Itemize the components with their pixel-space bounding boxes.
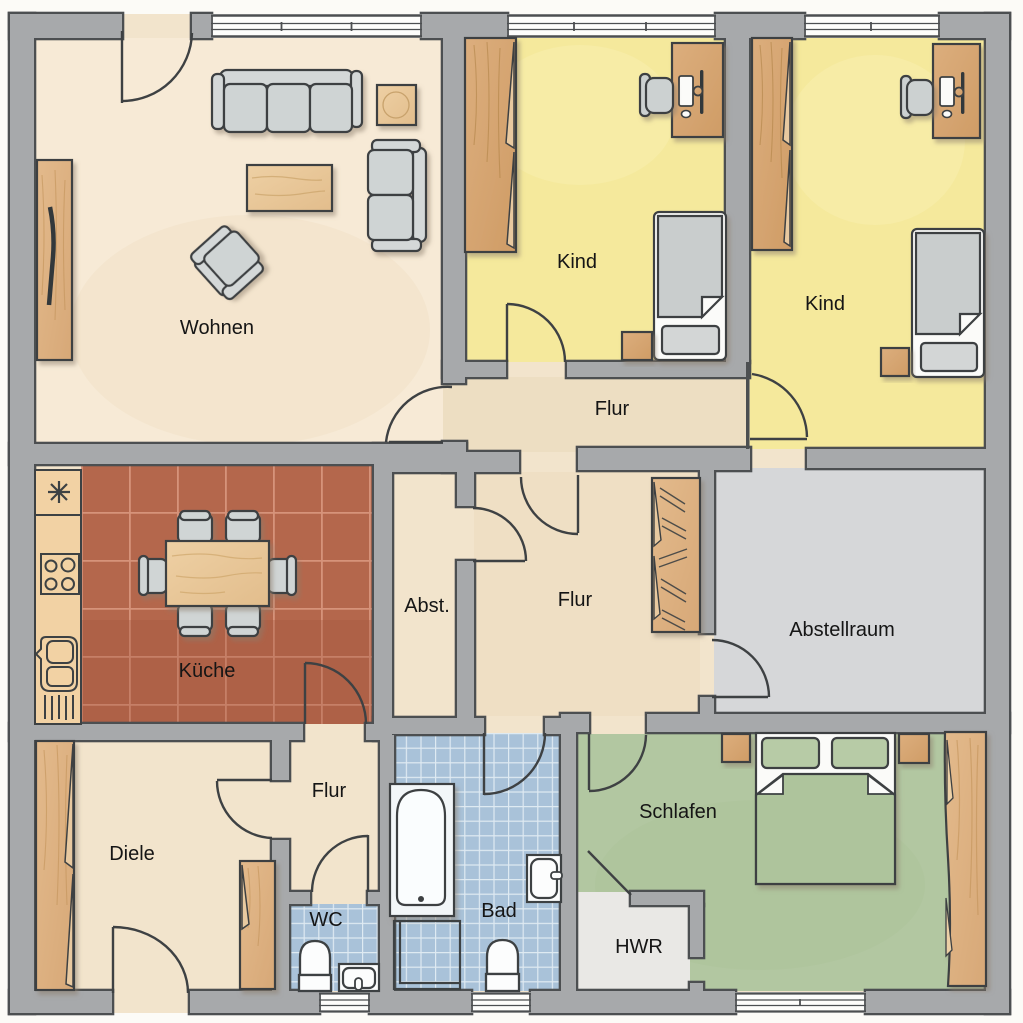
svg-text:Bad: Bad <box>481 900 517 922</box>
svg-text:Abst.: Abst. <box>404 595 450 617</box>
svg-text:Kind: Kind <box>805 293 845 315</box>
svg-text:Abstellraum: Abstellraum <box>789 619 895 641</box>
svg-text:WC: WC <box>309 909 342 931</box>
svg-text:Flur: Flur <box>558 589 593 611</box>
svg-text:Diele: Diele <box>109 843 155 865</box>
svg-text:HWR: HWR <box>615 936 663 958</box>
svg-text:Schlafen: Schlafen <box>639 801 717 823</box>
svg-text:Kind: Kind <box>557 251 597 273</box>
svg-text:Flur: Flur <box>312 780 347 802</box>
svg-text:Wohnen: Wohnen <box>180 317 254 339</box>
svg-text:Küche: Küche <box>179 660 236 682</box>
svg-text:Flur: Flur <box>595 398 630 420</box>
